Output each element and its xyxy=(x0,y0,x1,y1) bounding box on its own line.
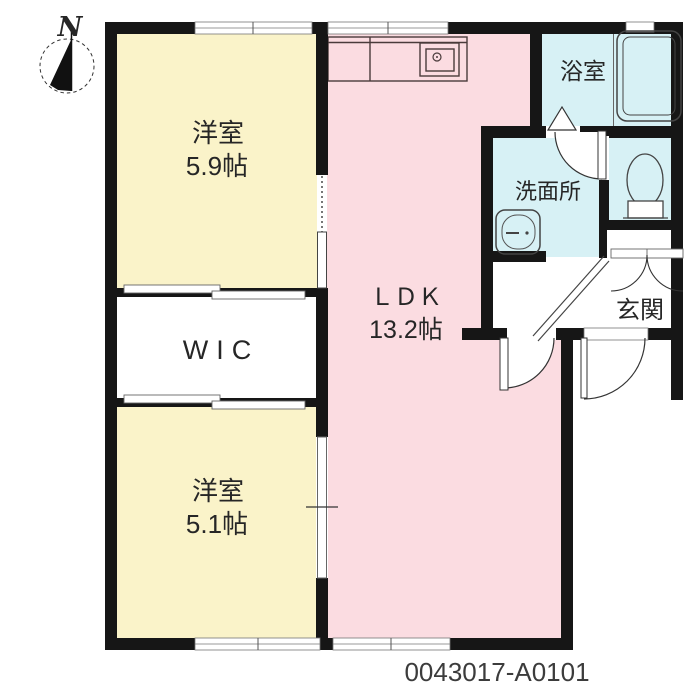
ldk-size: 13.2帖 xyxy=(369,316,443,344)
sliding-panel-a xyxy=(124,395,220,403)
wall-toilet-bottom xyxy=(599,220,683,230)
property-id: 0043017-A0101 xyxy=(404,657,589,687)
sliding-panel-a xyxy=(124,285,220,293)
ldk-label: ＬＤＫ xyxy=(370,284,442,311)
toilet-tank xyxy=(628,201,663,218)
washroom-label: 洗面所 xyxy=(515,179,581,204)
toilet-bowl xyxy=(627,154,663,206)
entrance-label: 玄関 xyxy=(616,297,664,324)
door-panel xyxy=(598,131,606,179)
bedroom1-size: 5.9帖 xyxy=(186,151,248,181)
wall-washroom-bottom xyxy=(487,251,546,262)
sliding-panel-b xyxy=(212,291,305,299)
bedroom2-label: 洋室 xyxy=(192,476,244,506)
window-ldk-top xyxy=(328,22,448,34)
wall-wic-ldk xyxy=(316,288,328,437)
compass-label: N xyxy=(57,12,84,43)
floorplan-svg: N 洋室 5.9帖 WIC 洋室 5.1帖 ＬＤＫ 13.2帖 浴室 洗面所 玄… xyxy=(0,0,700,700)
washbasin-faucet-dot xyxy=(525,231,528,234)
door-panel xyxy=(500,338,508,390)
wall-bedroom1-ldk xyxy=(316,22,328,175)
kitchen-faucet-dot xyxy=(436,56,438,58)
wic-label: WIC xyxy=(183,335,259,365)
window-ldk-bottom xyxy=(333,638,450,650)
door-gap xyxy=(584,328,648,340)
wall-ldk-right xyxy=(561,328,573,650)
window-bedroom1-top xyxy=(195,22,312,34)
door-front-entrance xyxy=(581,328,648,399)
sliding-panel-b xyxy=(212,401,305,409)
compass: N xyxy=(40,12,94,93)
door-arc xyxy=(584,338,645,399)
wall-ldk-bath xyxy=(530,28,542,138)
window-bedroom2-bottom xyxy=(195,638,320,650)
door-panel xyxy=(581,338,587,398)
door-bedroom1 xyxy=(317,175,327,288)
wall-entrance-south xyxy=(648,328,683,340)
kitchen-counter xyxy=(328,37,467,81)
wall-ldk-corridor xyxy=(481,126,493,340)
bathroom-label: 浴室 xyxy=(560,58,606,84)
wall-left xyxy=(105,22,117,650)
bedroom2-size: 5.1帖 xyxy=(186,509,248,539)
door-panel xyxy=(318,232,327,288)
floorplan-canvas: N 洋室 5.9帖 WIC 洋室 5.1帖 ＬＤＫ 13.2帖 浴室 洗面所 玄… xyxy=(0,0,700,700)
bedroom1-label: 洋室 xyxy=(192,118,244,148)
wall-closet-left xyxy=(599,230,607,258)
